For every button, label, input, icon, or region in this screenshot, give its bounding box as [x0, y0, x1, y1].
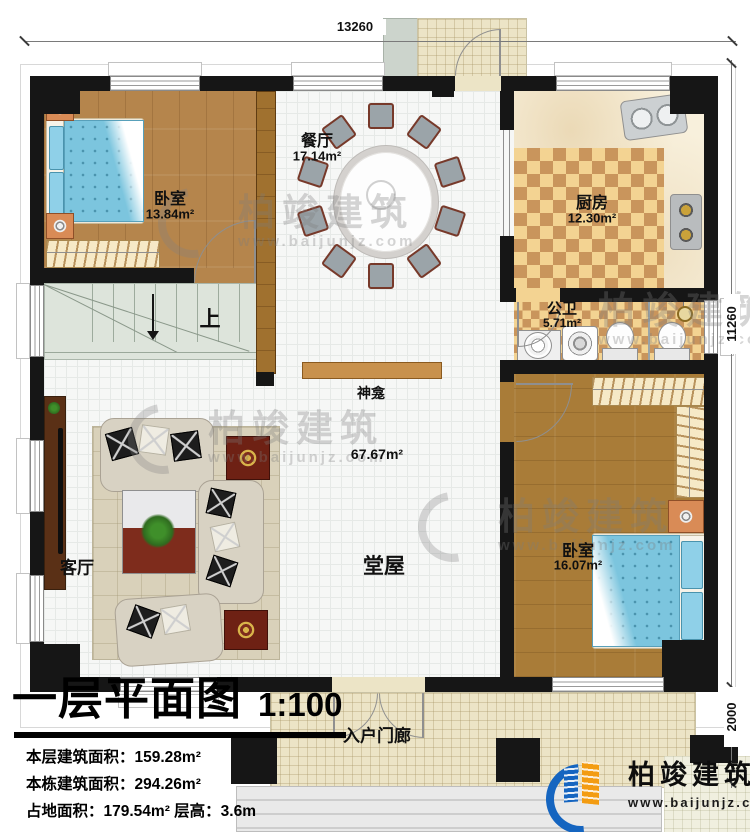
window-sill	[291, 62, 385, 76]
dimension-right: 11260	[724, 294, 740, 354]
stair-treads	[92, 284, 256, 342]
tv	[58, 428, 63, 554]
stove	[670, 194, 702, 250]
window-sill	[16, 573, 30, 644]
shower-divider	[648, 302, 650, 360]
sofa-pillow	[210, 522, 241, 553]
window	[110, 76, 200, 91]
porch-column-right	[496, 738, 540, 782]
shrine-shelf	[302, 362, 442, 379]
label-entry-porch: 入户门廊	[343, 722, 411, 747]
door-gap-kitchen	[500, 130, 514, 236]
window	[30, 575, 44, 642]
room-label-kitchen: 厨房	[576, 189, 608, 213]
window-sill	[554, 62, 672, 76]
corner-column	[662, 640, 718, 692]
wardrobe	[676, 406, 706, 498]
hanging-lamp-icon	[677, 306, 693, 322]
stat-building-area: 本栋建筑面积：294.26m²	[26, 771, 256, 798]
stat-footprint-height: 占地面积：179.54m² 层高：3.6m	[26, 798, 256, 825]
dining-chair	[368, 263, 394, 289]
room-area-hall: 67.67m²	[351, 446, 403, 462]
window	[556, 76, 670, 91]
room-area-bedroom1: 13.84m²	[146, 207, 194, 222]
window	[704, 300, 718, 354]
nightstand	[668, 500, 704, 533]
room-area-dining: 17.14m²	[293, 149, 341, 164]
title-block: 一层平面图 1:100 本层建筑面积：159.28m² 本栋建筑面积：294.2…	[12, 676, 352, 828]
plan-title: 一层平面图	[12, 676, 242, 721]
stat-floor-area: 本层建筑面积：159.28m²	[26, 744, 256, 771]
pier-backdoor	[500, 76, 514, 114]
brand-logo-icon	[546, 756, 618, 824]
sofa-pillow	[160, 604, 191, 635]
plan-scale: 1:100	[258, 688, 342, 721]
dining-chair	[368, 103, 394, 129]
washing-machine	[562, 326, 598, 361]
door-leaf	[517, 302, 519, 347]
window	[293, 76, 383, 91]
bed-pillow	[49, 172, 64, 216]
bed-mattress	[592, 535, 680, 647]
corner-column	[30, 76, 80, 114]
room-label-living: 客厅	[60, 554, 94, 579]
door-leaf	[516, 383, 573, 385]
partition-wood	[256, 91, 276, 374]
brand-logo: 柏竣建筑 www.baijunjz.com	[546, 754, 748, 826]
wall-bath-bedroom2	[500, 360, 718, 374]
dimension-right-lower: 2000	[724, 687, 740, 747]
bed-pillow	[681, 592, 703, 640]
dimension-top: 13260	[324, 19, 386, 35]
brand-name: 柏竣建筑	[628, 762, 750, 789]
label-stairs-up: 上	[200, 303, 221, 333]
wall-right	[704, 76, 718, 692]
door-gap-back	[455, 76, 501, 91]
bed-pillow	[49, 126, 64, 170]
door-leaf	[254, 220, 256, 283]
room-label-dining: 餐厅	[301, 127, 333, 151]
corner-column	[670, 76, 718, 114]
stair-edge	[44, 352, 256, 353]
window-sill	[108, 62, 202, 76]
dimension-line-right	[731, 60, 732, 788]
stair-arrow-stem	[152, 294, 154, 332]
sofa-pillow	[206, 488, 237, 519]
window-sill	[16, 283, 30, 359]
dimension-line-top	[24, 41, 736, 42]
window	[552, 677, 664, 692]
side-table	[224, 610, 268, 650]
partition-cap	[256, 372, 274, 386]
bed-pillow	[681, 541, 703, 589]
sofa-pillow	[170, 430, 202, 462]
nightstand	[46, 213, 74, 239]
title-rule	[14, 732, 346, 738]
door-leaf	[422, 693, 424, 738]
floor-plan: 卧室 13.84m² 餐厅 17.14m² 厨房 12.30m² 公卫 5.71…	[0, 0, 750, 832]
room-area-bathroom: 5.71m²	[543, 316, 581, 330]
bed-mattress	[64, 120, 144, 222]
plant-small	[48, 402, 60, 414]
pier-backdoor	[432, 76, 454, 97]
window	[30, 285, 44, 357]
window-sill	[16, 438, 30, 514]
dresser	[46, 240, 160, 268]
dining-table-center	[366, 180, 396, 210]
door-leaf	[499, 29, 501, 76]
sofa-pillow	[138, 424, 170, 456]
window	[30, 440, 44, 512]
back-step	[383, 18, 419, 77]
room-label-hall: 堂屋	[363, 550, 405, 580]
label-shrine: 神龛	[357, 383, 385, 403]
door-gap-bedroom2	[500, 382, 514, 442]
room-area-kitchen: 12.30m²	[568, 211, 616, 226]
stair-arrow-head	[147, 331, 159, 346]
wardrobe	[592, 377, 706, 406]
room-area-bedroom2: 16.07m²	[554, 558, 602, 573]
room-label-bedroom1: 卧室	[154, 185, 186, 209]
side-table	[226, 436, 270, 480]
brand-website: www.baijunjz.com	[628, 796, 750, 809]
